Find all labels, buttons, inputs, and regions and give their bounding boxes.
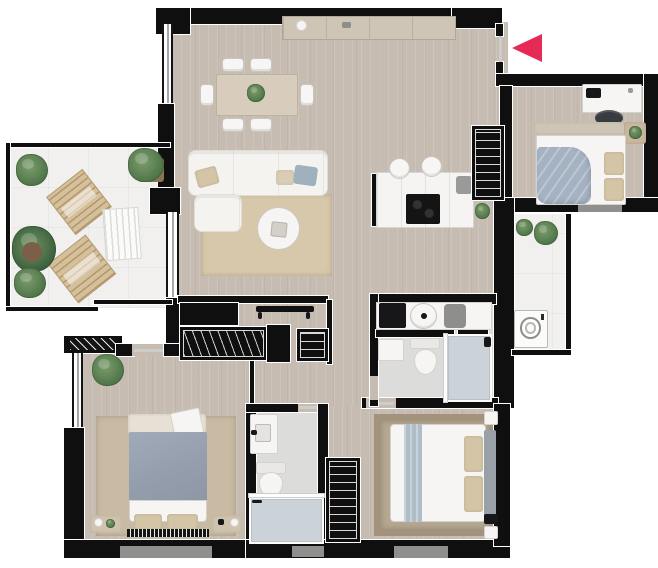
- shower-ensuite-glass: [249, 494, 324, 497]
- hall-console-leg-1: [258, 312, 262, 319]
- hamper-bathmain: [444, 304, 466, 328]
- washing-machine: [514, 310, 548, 348]
- window-master-north-hatch: [70, 338, 116, 350]
- wall-right-column: [494, 198, 514, 408]
- plant-bedroom1: [629, 126, 642, 139]
- sofa-chaise: [194, 194, 242, 232]
- plant-master-left: [106, 519, 115, 528]
- sofa-pillow-blue: [293, 164, 318, 186]
- kitchen-appliance: [456, 176, 472, 194]
- sofa-seat-accent: [276, 170, 294, 185]
- coffee-table-tray: [270, 221, 287, 238]
- bench-foot-master: [127, 529, 209, 537]
- decor-master-right: [218, 519, 224, 525]
- bed-master-cushion-2: [167, 514, 198, 530]
- sideboard-decor: [342, 22, 351, 28]
- lamp-master-right: [230, 518, 239, 527]
- door-ensuite-leaf: [299, 406, 319, 409]
- pantry-shelf-unit: [472, 126, 504, 200]
- rail-balcony-bottom: [512, 350, 571, 355]
- door-master-leaf: [134, 349, 164, 352]
- rail-balcony-right: [566, 214, 571, 354]
- bed-master-duvet: [129, 432, 207, 502]
- plant-balcony-2: [534, 221, 558, 245]
- halfwall-bathmain-a: [376, 330, 454, 337]
- shower-bathmain-head: [484, 337, 491, 347]
- dining-chair-5: [200, 84, 214, 106]
- faucet-bathmain: [421, 313, 427, 319]
- wall-top-right: [452, 8, 502, 28]
- dining-chair-1: [222, 58, 244, 72]
- wardrobe-hall-shelves: [297, 329, 328, 361]
- nightstand-bed3-bottom: [484, 526, 498, 539]
- dining-chair-6: [300, 84, 314, 106]
- cooktop: [406, 194, 440, 224]
- nightstand-bed3-top: [484, 411, 498, 425]
- bed3-headboard: [484, 430, 496, 520]
- dining-chair-4: [250, 118, 272, 132]
- toilet-bathmain-tank: [410, 338, 440, 349]
- wall-terrace-top: [6, 143, 170, 147]
- plant-terrace-ne: [128, 148, 164, 182]
- wall-terrace-left: [6, 143, 10, 311]
- dining-chair-3: [222, 118, 244, 132]
- plant-terrace-sw: [14, 268, 46, 298]
- bed1-pillow-1: [604, 152, 624, 175]
- dining-centerpiece-plant: [247, 84, 265, 102]
- plant-balcony-1: [516, 219, 533, 236]
- wardrobe-hall-mid: [267, 325, 290, 362]
- sideboard-decor-bowl: [296, 20, 307, 31]
- wall-terrace-bottom: [6, 307, 98, 311]
- wall-living-west-chunk: [150, 188, 180, 214]
- wall-hall-top: [178, 296, 328, 303]
- shower-bathmain-glass: [444, 334, 447, 402]
- wall-entry-upper: [496, 24, 503, 36]
- cabinet-hall-block: [180, 303, 238, 325]
- kitchen-stool-2: [421, 156, 442, 177]
- wardrobe-hall-hanging: [180, 327, 267, 360]
- laptop-bedroom1: [586, 88, 601, 98]
- faucet-ensuite: [251, 430, 257, 435]
- hall-console-leg-2: [306, 312, 310, 319]
- wall-bedroom1-right: [644, 74, 658, 212]
- appliance-bathmain: [379, 303, 406, 328]
- doorgap-bathmain: [370, 376, 378, 400]
- entrance-arrow: [512, 34, 542, 62]
- wall-master-west: [64, 428, 84, 558]
- bed1-blanket: [537, 147, 591, 204]
- plant-master-corner: [92, 354, 124, 386]
- bed3-throw: [404, 424, 422, 522]
- plant-terrace-nw: [16, 154, 48, 186]
- hall-console: [256, 306, 314, 312]
- window-living-west-lower: [166, 212, 179, 300]
- basin-ensuite: [255, 424, 271, 442]
- wall-terrace-bottom-right: [94, 300, 172, 304]
- lamp-master-left: [94, 518, 103, 527]
- bed1-headboard: [534, 122, 628, 135]
- dining-chair-2: [250, 58, 272, 72]
- bed1-pillow-2: [604, 178, 624, 201]
- sill-ensuite-window: [292, 546, 324, 557]
- sideboard: [282, 16, 456, 40]
- table-terrace: [102, 207, 142, 261]
- sink-wall-bathmain: [378, 339, 404, 361]
- pot-terrace-monstera: [22, 242, 42, 262]
- sill-bedroom3-window: [394, 546, 448, 558]
- kitchen-stool-1: [389, 158, 410, 179]
- desk-item-bedroom1: [628, 88, 633, 93]
- window-living-west-upper: [162, 24, 173, 106]
- decor-bed3: [484, 514, 498, 524]
- window-master-west: [72, 353, 83, 429]
- bed-master-cushion-1: [134, 514, 162, 530]
- closet-bedroom3: [326, 458, 360, 542]
- shower-ensuite-head: [252, 500, 262, 503]
- wall-master-east-upper: [250, 354, 254, 406]
- wall-bedroom3-east: [494, 404, 510, 546]
- bed3-pillow-2: [464, 476, 483, 512]
- bed3-pillow-1: [464, 436, 483, 472]
- kitchen-plant: [475, 203, 490, 219]
- floor-plan: [0, 0, 658, 568]
- sill-master-window: [120, 546, 212, 558]
- door-entry-leaf: [499, 36, 502, 62]
- shower-ensuite: [249, 497, 324, 544]
